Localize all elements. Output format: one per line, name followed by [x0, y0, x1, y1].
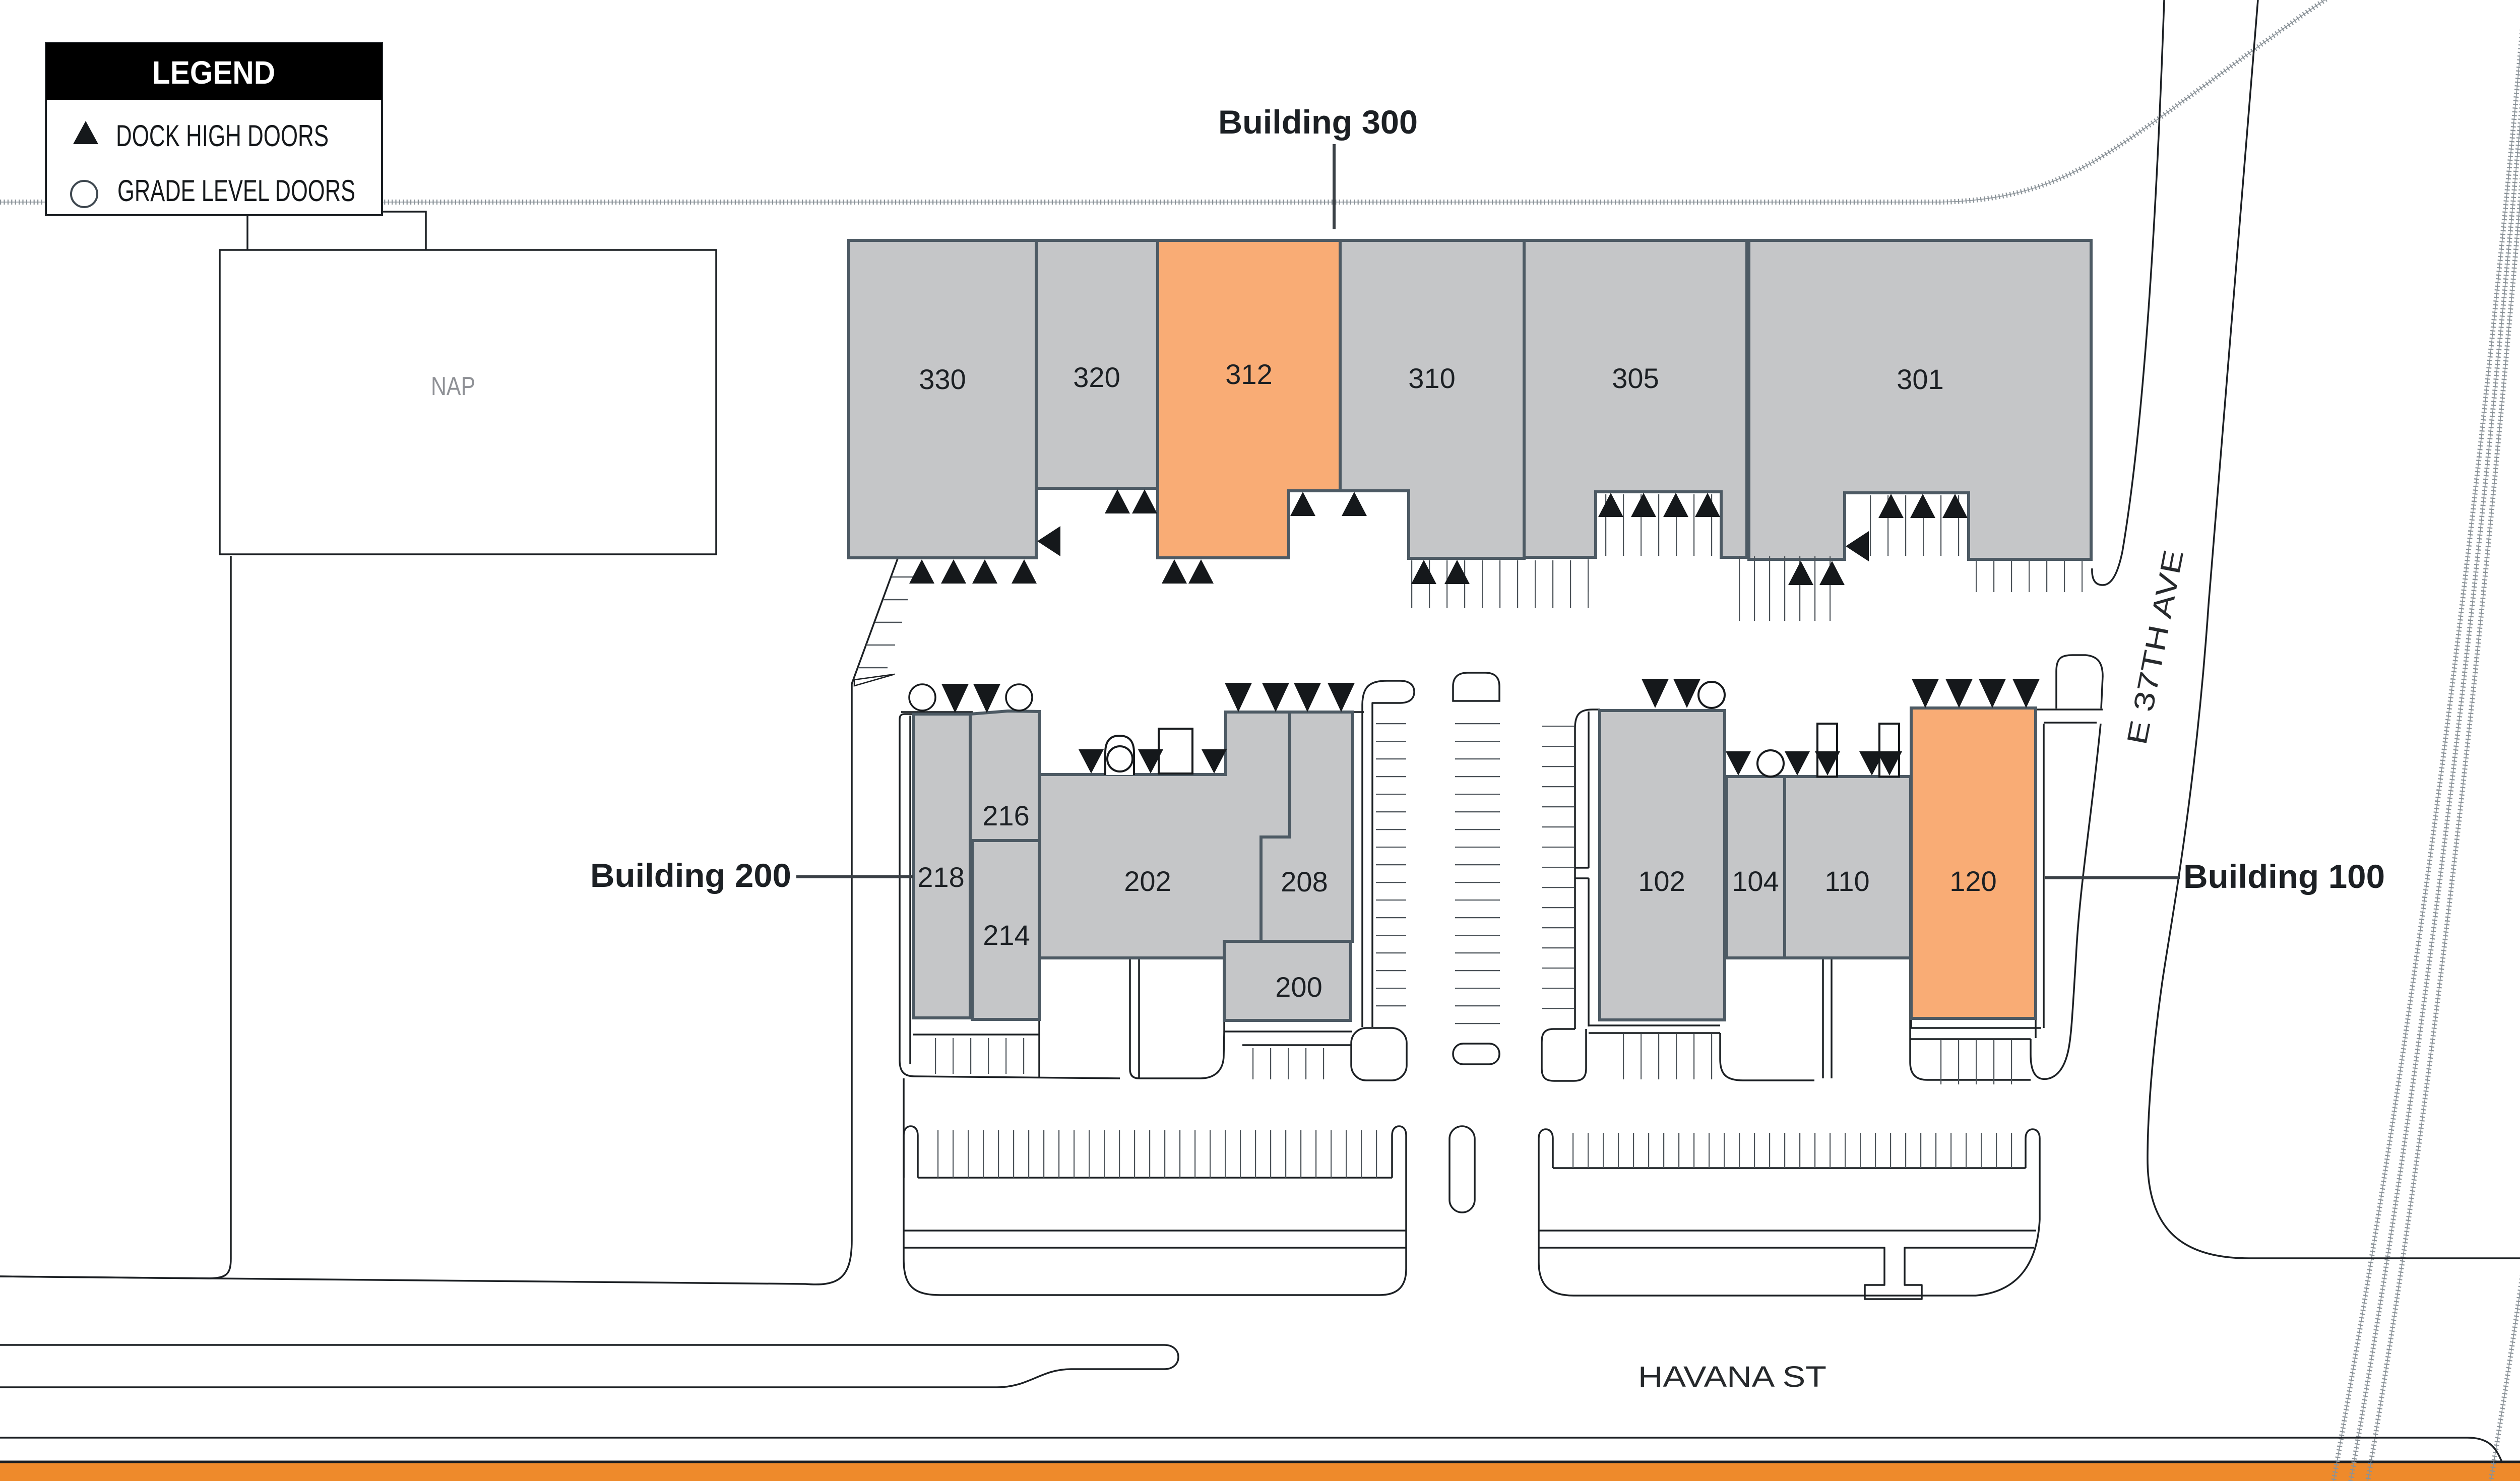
svg-text:104: 104 — [1732, 865, 1779, 897]
svg-text:NAP: NAP — [431, 372, 475, 401]
svg-text:214: 214 — [983, 919, 1030, 951]
svg-text:202: 202 — [1124, 865, 1171, 897]
svg-text:102: 102 — [1638, 865, 1685, 897]
svg-text:305: 305 — [1612, 362, 1659, 394]
svg-text:110: 110 — [1824, 865, 1869, 897]
svg-text:310: 310 — [1408, 362, 1455, 394]
svg-text:DOCK HIGH DOORS: DOCK HIGH DOORS — [116, 119, 329, 153]
svg-text:216: 216 — [982, 800, 1029, 831]
svg-text:Building 100: Building 100 — [2183, 858, 2385, 895]
svg-text:Building 200: Building 200 — [590, 857, 791, 894]
svg-text:312: 312 — [1225, 358, 1272, 390]
svg-text:Building 300: Building 300 — [1218, 103, 1418, 141]
svg-text:301: 301 — [1897, 363, 1943, 395]
svg-text:GRADE LEVEL DOORS: GRADE LEVEL DOORS — [117, 174, 355, 208]
svg-text:330: 330 — [919, 363, 966, 395]
svg-text:HAVANA ST: HAVANA ST — [1638, 1361, 1826, 1393]
svg-text:LEGEND: LEGEND — [152, 54, 275, 91]
svg-text:218: 218 — [917, 861, 964, 893]
svg-text:120: 120 — [1949, 865, 1996, 897]
svg-text:320: 320 — [1073, 361, 1120, 393]
svg-text:200: 200 — [1275, 971, 1322, 1003]
svg-text:208: 208 — [1281, 866, 1328, 897]
